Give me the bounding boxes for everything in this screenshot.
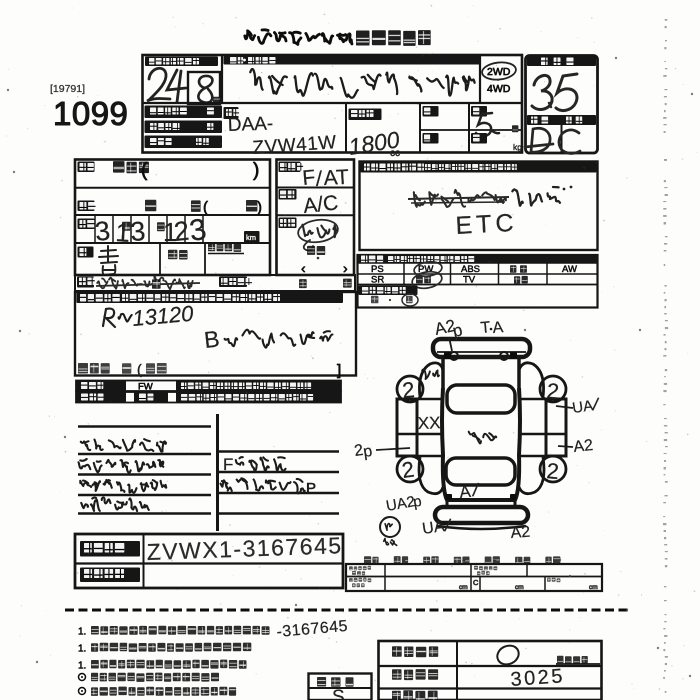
svg-text:B: B [203,326,221,353]
svg-text:‹: ‹ [301,260,306,276]
svg-text:P: P [306,480,316,497]
svg-text:]: ] [337,362,341,379]
svg-text:S: S [332,687,345,700]
svg-text:2: 2 [401,377,415,403]
svg-text:F: F [301,166,316,190]
svg-text:UA: UA [571,397,594,417]
svg-text:4WD: 4WD [487,83,511,95]
svg-text:A2: A2 [573,437,594,456]
svg-text:FW: FW [138,382,153,393]
svg-text:AT: AT [323,166,350,190]
svg-text:AW: AW [562,264,577,275]
svg-text:XX: XX [417,413,440,433]
svg-text:UA: UA [421,518,446,538]
svg-text:km: km [246,233,256,242]
svg-text:TV: TV [463,275,476,286]
svg-text:A/C: A/C [302,191,339,218]
svg-text:›: › [343,260,348,276]
svg-text:PS: PS [371,264,384,275]
svg-text:3025: 3025 [510,665,566,691]
svg-text:kg: kg [513,142,522,152]
svg-text:SR: SR [371,275,384,286]
svg-text:cc: cc [390,148,400,159]
svg-text:ETC: ETC [455,209,518,240]
svg-text:A: A [492,319,504,337]
svg-text:cm: cm [589,584,598,591]
svg-text:ABS: ABS [461,264,480,275]
svg-text:1.: 1. [78,661,86,672]
svg-text:2: 2 [545,378,560,404]
svg-text:[19791]: [19791] [50,83,85,95]
svg-text:2: 2 [546,458,560,484]
svg-text:A2: A2 [510,524,531,542]
svg-text:(: ( [137,361,142,377]
svg-text:DAA-: DAA- [227,113,273,136]
svg-text:cm: cm [459,584,468,591]
svg-text:): ) [253,160,259,181]
svg-text:cm: cm [515,584,524,591]
svg-text:2WD: 2WD [487,66,511,78]
svg-text:1.: 1. [78,627,86,638]
svg-text:): ) [257,199,262,216]
svg-text:F: F [223,455,233,474]
svg-text:C: C [473,578,479,587]
svg-text:1099: 1099 [53,95,128,132]
svg-text:1.: 1. [78,644,86,655]
svg-text:T: T [480,319,491,337]
svg-text:(: ( [141,160,148,181]
